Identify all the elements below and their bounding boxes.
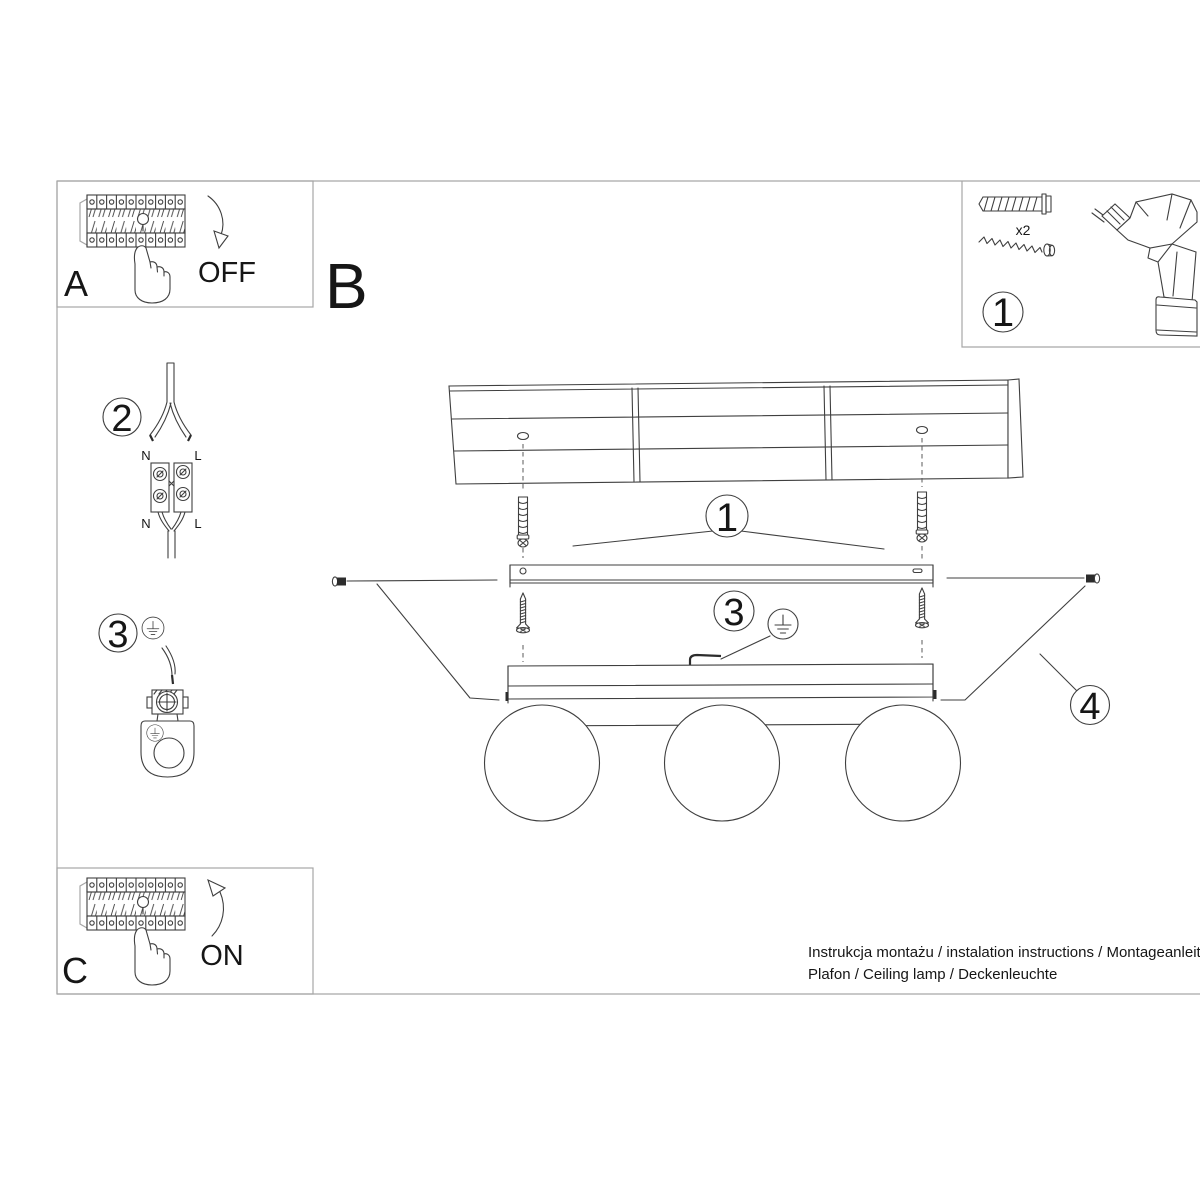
step-b-letter: B xyxy=(325,250,368,322)
wall-anchor-left-icon xyxy=(517,497,529,547)
mounting-bar xyxy=(510,565,933,587)
page-frame xyxy=(57,181,1200,994)
lamp-fixture xyxy=(485,664,961,821)
supply-cable-icon xyxy=(150,363,191,441)
tools-box: x2 1 xyxy=(979,194,1197,336)
step-box-c: ON C xyxy=(62,878,244,991)
off-label: OFF xyxy=(198,257,256,289)
fixing-screw-left-icon xyxy=(517,593,530,633)
svg-text:3: 3 xyxy=(723,592,744,634)
instruction-sheet: OFF A B x2 xyxy=(0,0,1200,1200)
breaker-panel-icon xyxy=(80,195,185,247)
svg-text:4: 4 xyxy=(1079,686,1100,728)
main-diagram: 1 4 xyxy=(332,379,1109,821)
wire-l-top-label: L xyxy=(194,448,201,463)
arrow-up-icon xyxy=(208,880,225,936)
wire-n-top-label: N xyxy=(141,448,150,463)
mounting-bracket-icon xyxy=(141,721,194,777)
pressing-finger-icon xyxy=(134,246,170,303)
installation-manual-canvas: OFF A B x2 xyxy=(0,0,1200,1200)
lamp-cable-icon xyxy=(158,512,185,558)
screw-icon xyxy=(979,237,1055,256)
ground-wire-icon xyxy=(162,646,175,684)
ground-symbol-icon xyxy=(142,617,164,639)
quantity-label: x2 xyxy=(1016,222,1031,238)
ground-wire-icon xyxy=(690,655,721,666)
ground-detail-side: 3 xyxy=(99,614,194,777)
wall-plug-icon xyxy=(979,194,1051,214)
glass-globe-right xyxy=(846,705,961,821)
ceiling-panel xyxy=(449,379,1023,484)
svg-text:1: 1 xyxy=(716,496,738,540)
callout-ground-main: 3 xyxy=(690,591,798,666)
callout-side-screws: 4 xyxy=(1040,654,1110,728)
callout-ground-side: 3 xyxy=(99,614,137,656)
callout-wiring: 2 xyxy=(103,398,141,440)
wire-n-bottom-label: N xyxy=(141,516,150,531)
side-bolt-left-icon xyxy=(332,577,346,586)
callout-anchors: 1 xyxy=(573,495,884,549)
wire-l-bottom-label: L xyxy=(194,516,201,531)
footer: Instrukcja montażu / instalation instruc… xyxy=(808,944,1200,983)
footer-title-line: Instrukcja montażu / instalation instruc… xyxy=(808,944,1200,961)
step-a-letter: A xyxy=(64,263,88,304)
step-c-letter: C xyxy=(62,950,88,991)
svg-text:3: 3 xyxy=(107,614,128,656)
terminal-block-icon xyxy=(151,463,192,512)
svg-text:1: 1 xyxy=(992,291,1014,335)
wiring-detail: 2 N L N L xyxy=(103,363,202,558)
wall-anchor-right-icon xyxy=(916,492,928,542)
svg-text:2: 2 xyxy=(111,398,132,440)
glass-globe-left xyxy=(485,705,600,821)
drill-icon xyxy=(1092,194,1197,336)
footer-product-line: Plafon / Ceiling lamp / Deckenleuchte xyxy=(808,966,1057,983)
on-label: ON xyxy=(200,940,244,972)
ground-clamp-icon xyxy=(147,690,188,721)
pressing-finger-icon xyxy=(134,928,170,985)
fixing-screw-right-icon xyxy=(916,588,929,628)
breaker-panel-icon xyxy=(80,878,185,930)
glass-globe-middle xyxy=(665,705,780,821)
side-bolt-right-icon xyxy=(1086,574,1100,583)
callout-tools: 1 xyxy=(983,291,1023,335)
step-box-a: OFF A xyxy=(64,195,256,304)
arrow-down-icon xyxy=(208,196,228,248)
ground-symbol-icon xyxy=(768,609,798,639)
